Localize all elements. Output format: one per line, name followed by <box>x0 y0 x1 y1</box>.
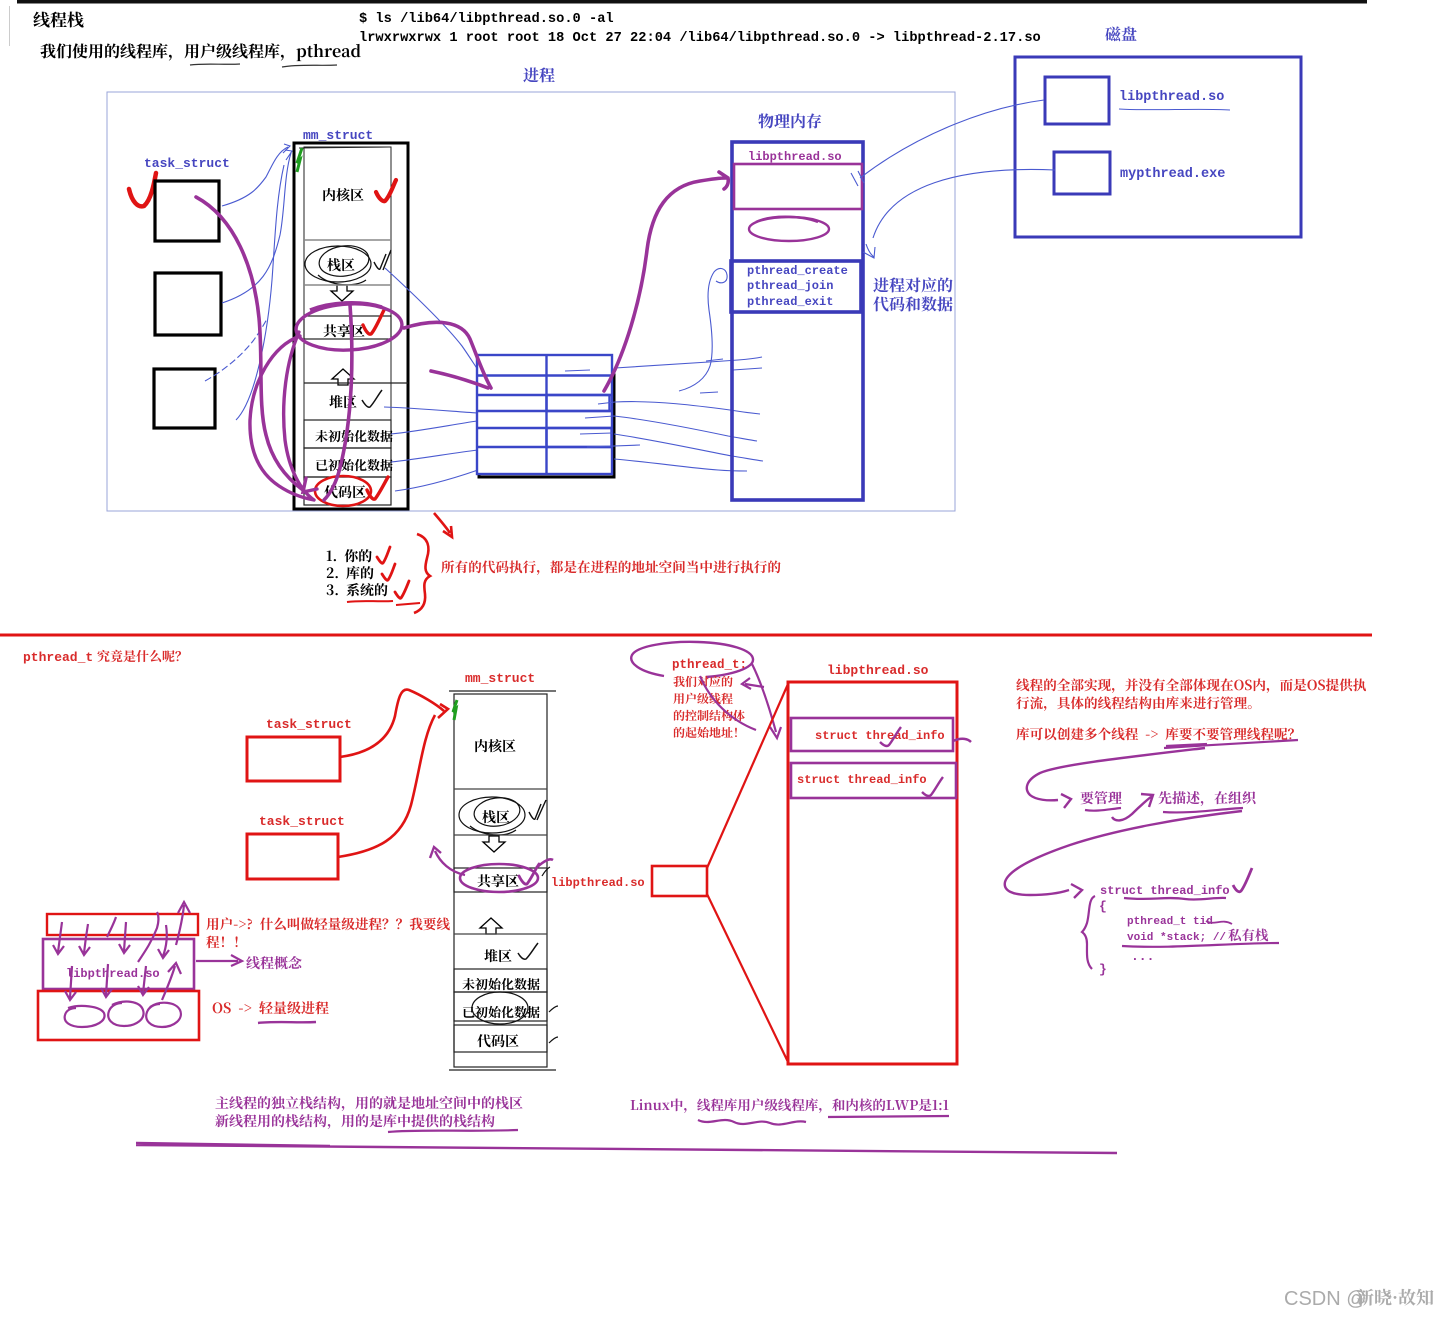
svg-text:CSDN @: CSDN @ <box>1284 1288 1367 1310</box>
svg-text:pthread_join: pthread_join <box>747 279 833 293</box>
svg-text:mypthread.exe: mypthread.exe <box>1120 167 1225 182</box>
svg-text:...: ... <box>1131 949 1154 964</box>
svg-text:mm_struct: mm_struct <box>465 671 535 686</box>
svg-text:libpthread.so: libpthread.so <box>1119 90 1224 105</box>
svg-text:struct thread_info: struct thread_info <box>815 729 945 743</box>
svg-text:pthread_t: pthread_t <box>23 650 93 665</box>
svg-text:libpthread.so: libpthread.so <box>827 663 929 678</box>
svg-text:pthread_exit: pthread_exit <box>747 295 833 309</box>
svg-text:lrwxrwxrwx 1 root root 18 Oct: lrwxrwxrwx 1 root root 18 Oct 27 22:04 /… <box>359 31 1041 46</box>
svg-text:pthread_t tid: pthread_t tid <box>1127 916 1213 928</box>
svg-text:pthread_t:: pthread_t: <box>672 658 747 672</box>
svg-text:struct thread_info: struct thread_info <box>797 773 927 787</box>
svg-text:task_struct: task_struct <box>266 717 352 732</box>
svg-text:void *stack; //: void *stack; // <box>1127 932 1226 944</box>
svg-text:struct thread_info: struct thread_info <box>1100 884 1230 898</box>
svg-text:libpthread.so: libpthread.so <box>748 150 842 164</box>
svg-text:task_struct: task_struct <box>144 156 230 171</box>
svg-text:}: } <box>1099 962 1107 977</box>
svg-text:pthread_create: pthread_create <box>747 264 848 278</box>
svg-text:mm_struct: mm_struct <box>303 128 373 143</box>
svg-text:$ ls /lib64/libpthread.so.0 -a: $ ls /lib64/libpthread.so.0 -al <box>359 12 614 27</box>
svg-text:libpthread.so: libpthread.so <box>551 876 645 890</box>
svg-text:task_struct: task_struct <box>259 814 345 829</box>
svg-text:{: { <box>1099 899 1107 914</box>
